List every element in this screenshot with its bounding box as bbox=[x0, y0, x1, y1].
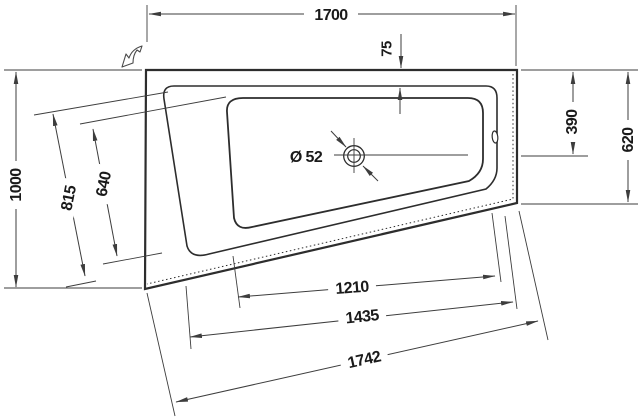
dim-text-75: 75 bbox=[378, 41, 395, 57]
panel-dotted-edge bbox=[147, 74, 513, 284]
dim-text-drain-diameter: Ø 52 bbox=[290, 149, 323, 166]
label-1000: 1000 bbox=[6, 161, 25, 209]
ext-1435-right bbox=[505, 216, 517, 309]
label-620: 620 bbox=[618, 120, 637, 160]
label-1210: 1210 bbox=[327, 276, 376, 298]
ext-1742-left bbox=[147, 293, 175, 416]
rim-inner-edge bbox=[164, 86, 497, 255]
ext-640-top bbox=[80, 97, 226, 124]
ext-1435-left bbox=[186, 286, 191, 349]
ext-1210-right bbox=[492, 213, 501, 282]
ext-1210-left bbox=[233, 256, 240, 308]
drain-symbol bbox=[331, 131, 468, 181]
dim-text-1742: 1742 bbox=[346, 348, 383, 372]
bathtub-technical-drawing: 1700 75 390 620 1000 815 640 1210 bbox=[0, 0, 640, 418]
dim-text-390: 390 bbox=[564, 109, 581, 135]
overflow-drain bbox=[492, 131, 499, 144]
dim-text-1700: 1700 bbox=[314, 7, 348, 24]
ext-815-bottom bbox=[66, 281, 96, 287]
label-75: 75 bbox=[378, 41, 395, 57]
ext-640-bottom bbox=[103, 253, 162, 264]
drawing-canvas: 1700 75 390 620 1000 815 640 1210 bbox=[0, 0, 640, 418]
label-1742: 1742 bbox=[339, 345, 390, 374]
dim-text-1435: 1435 bbox=[345, 307, 380, 327]
dim-text-815: 815 bbox=[59, 184, 81, 212]
ext-1742-right bbox=[519, 211, 548, 340]
extension-lines bbox=[4, 5, 638, 416]
dim-text-1210: 1210 bbox=[335, 278, 370, 298]
view-direction-arrow-icon bbox=[122, 46, 142, 67]
dimension-labels: 1700 75 390 620 1000 815 640 1210 bbox=[6, 5, 637, 374]
dim-text-1000: 1000 bbox=[8, 168, 25, 202]
drain-leader-upper bbox=[331, 131, 346, 147]
drain-leader-lower bbox=[363, 166, 378, 181]
label-1435: 1435 bbox=[337, 305, 387, 329]
label-drain-diameter: Ø 52 bbox=[290, 149, 323, 166]
dim-text-620: 620 bbox=[620, 127, 637, 153]
label-640: 640 bbox=[91, 164, 117, 205]
label-390: 390 bbox=[562, 102, 581, 142]
label-1700: 1700 bbox=[304, 5, 358, 24]
bathtub-outline bbox=[122, 46, 517, 289]
dimension-lines bbox=[16, 14, 628, 402]
label-815: 815 bbox=[56, 178, 82, 219]
dim-text-640: 640 bbox=[94, 170, 116, 198]
